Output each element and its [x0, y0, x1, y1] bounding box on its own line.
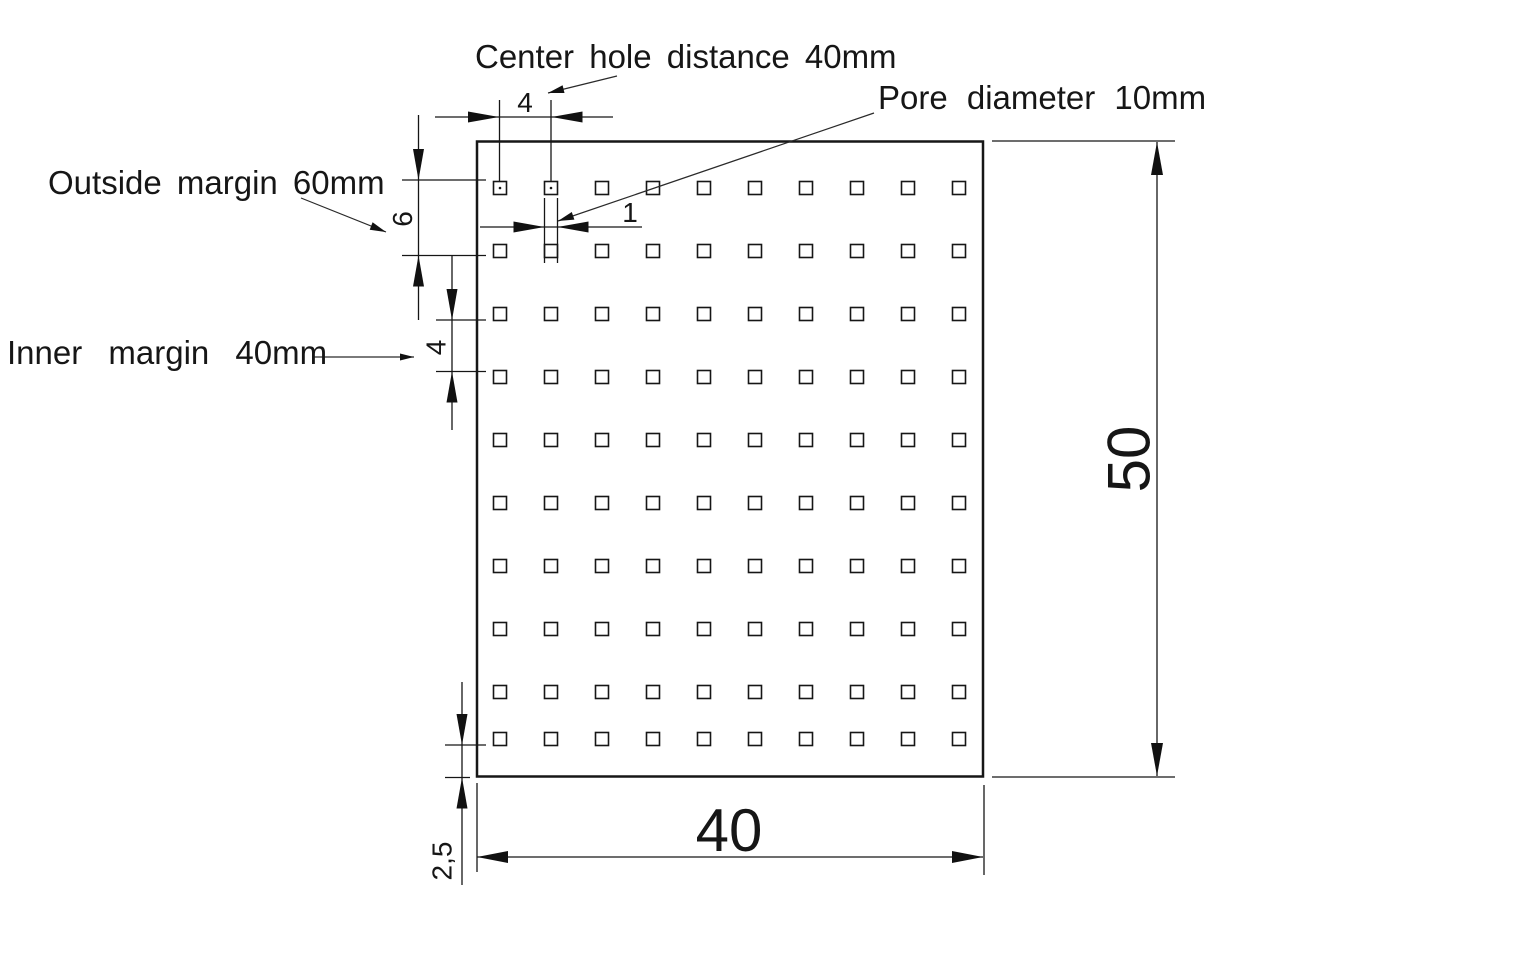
label-pore-diameter: Pore diameter 10mm: [878, 79, 1206, 116]
pore-hole: [800, 497, 813, 510]
dim-value-plate-width: 40: [696, 797, 763, 864]
pore-hole: [800, 182, 813, 195]
dimension-arrowhead: [447, 372, 458, 403]
dimension-arrowhead: [457, 714, 468, 745]
pore-hole: [851, 686, 864, 699]
pore-hole: [953, 308, 966, 321]
pore-hole: [596, 308, 609, 321]
pore-hole: [545, 245, 558, 258]
pore-hole: [698, 733, 711, 746]
dimension-arrowhead: [413, 256, 424, 287]
dim-value-hole-pitch: 4: [517, 87, 533, 118]
technical-drawing-canvas: Center hole distance 40mm Pore diameter …: [0, 0, 1533, 965]
pore-hole: [545, 623, 558, 636]
pore-hole: [902, 371, 915, 384]
pore-hole: [698, 434, 711, 447]
pore-hole: [698, 623, 711, 636]
pore-hole: [851, 497, 864, 510]
pore-hole: [800, 245, 813, 258]
pore-hole: [596, 686, 609, 699]
pore-hole: [545, 497, 558, 510]
hole-center-dot: [499, 187, 502, 190]
dimension-arrowhead: [548, 85, 565, 93]
pore-hole: [596, 434, 609, 447]
dimension-arrowhead: [952, 851, 983, 863]
pore-hole: [494, 308, 507, 321]
pore-hole: [953, 434, 966, 447]
dim-value-outside-margin: 6: [387, 211, 418, 227]
pore-hole: [647, 245, 660, 258]
pore-hole: [647, 497, 660, 510]
dim-value-inner-margin: 4: [420, 340, 451, 356]
pore-hole: [545, 733, 558, 746]
pore-hole: [647, 686, 660, 699]
pore-hole: [698, 686, 711, 699]
pore-hole: [749, 308, 762, 321]
pore-hole: [953, 686, 966, 699]
pore-hole: [647, 308, 660, 321]
pore-hole: [494, 497, 507, 510]
hole-center-dot: [550, 187, 553, 190]
pore-hole: [749, 560, 762, 573]
pore-hole: [800, 371, 813, 384]
dimension-arrowhead: [400, 354, 414, 361]
pore-hole: [545, 686, 558, 699]
pore-hole: [596, 497, 609, 510]
pore-hole: [902, 497, 915, 510]
pore-hole: [698, 371, 711, 384]
pore-hole: [494, 560, 507, 573]
pore-hole: [596, 733, 609, 746]
dimension-arrowhead: [1151, 743, 1163, 776]
dimension-arrowhead: [1151, 142, 1163, 175]
dimension-arrowhead: [477, 851, 508, 863]
pore-hole: [596, 182, 609, 195]
pore-hole: [851, 733, 864, 746]
label-outside-margin: Outside margin 60mm: [48, 164, 385, 201]
dimension-arrowhead: [447, 289, 458, 320]
pore-hole: [902, 733, 915, 746]
label-inner-margin: Inner margin 40mm: [7, 334, 327, 371]
pore-hole: [698, 560, 711, 573]
pore-hole: [800, 733, 813, 746]
pore-hole: [494, 245, 507, 258]
pore-hole: [749, 434, 762, 447]
pore-hole: [545, 434, 558, 447]
pore-hole: [902, 182, 915, 195]
pore-hole: [545, 560, 558, 573]
dimension-arrowhead: [468, 112, 499, 123]
pore-hole: [953, 623, 966, 636]
pore-hole: [902, 308, 915, 321]
pore-hole: [749, 245, 762, 258]
pore-hole: [902, 560, 915, 573]
pore-hole: [494, 686, 507, 699]
pore-hole: [647, 560, 660, 573]
dimension-arrowhead: [457, 778, 468, 809]
pore-hole: [647, 623, 660, 636]
pore-hole: [698, 182, 711, 195]
pore-hole: [953, 371, 966, 384]
pore-hole: [698, 497, 711, 510]
pore-hole: [647, 733, 660, 746]
pore-hole: [800, 434, 813, 447]
pore-hole: [800, 623, 813, 636]
pore-hole: [494, 733, 507, 746]
dimension-arrowhead: [370, 222, 386, 232]
pore-hole: [953, 560, 966, 573]
pore-hole: [953, 182, 966, 195]
pore-hole: [749, 497, 762, 510]
pore-hole: [902, 245, 915, 258]
pore-hole: [902, 434, 915, 447]
pore-hole: [851, 245, 864, 258]
pore-hole: [596, 371, 609, 384]
pore-hole: [953, 733, 966, 746]
pore-hole: [749, 623, 762, 636]
dim-value-pore-width: 1: [622, 197, 638, 228]
pore-hole: [749, 686, 762, 699]
pore-hole: [851, 623, 864, 636]
pore-hole: [494, 434, 507, 447]
pore-hole: [647, 371, 660, 384]
pore-hole: [545, 308, 558, 321]
dimension-arrowhead: [552, 112, 583, 123]
pore-hole: [749, 371, 762, 384]
pore-hole: [851, 308, 864, 321]
pore-hole: [698, 308, 711, 321]
pore-hole: [851, 560, 864, 573]
pore-hole: [494, 371, 507, 384]
pore-hole: [902, 623, 915, 636]
pore-hole: [800, 308, 813, 321]
pore-hole: [902, 686, 915, 699]
pore-hole: [749, 733, 762, 746]
pore-hole: [494, 623, 507, 636]
pore-hole: [545, 371, 558, 384]
pore-hole: [851, 371, 864, 384]
pore-hole: [851, 434, 864, 447]
dim-value-plate-height: 50: [1096, 426, 1163, 493]
pore-hole: [749, 182, 762, 195]
pore-hole: [596, 623, 609, 636]
pore-hole: [851, 182, 864, 195]
pore-hole: [953, 497, 966, 510]
pore-hole: [647, 434, 660, 447]
pore-hole: [800, 560, 813, 573]
pore-hole: [596, 245, 609, 258]
dim-value-bottom-margin: 2,5: [426, 842, 457, 881]
pore-hole: [953, 245, 966, 258]
pore-hole: [800, 686, 813, 699]
plate-rect: [477, 142, 983, 777]
label-center-hole-distance: Center hole distance 40mm: [475, 38, 897, 75]
plate-outline: [477, 142, 983, 777]
pore-hole: [698, 245, 711, 258]
dimension-arrowhead: [413, 149, 424, 180]
pore-hole: [596, 560, 609, 573]
